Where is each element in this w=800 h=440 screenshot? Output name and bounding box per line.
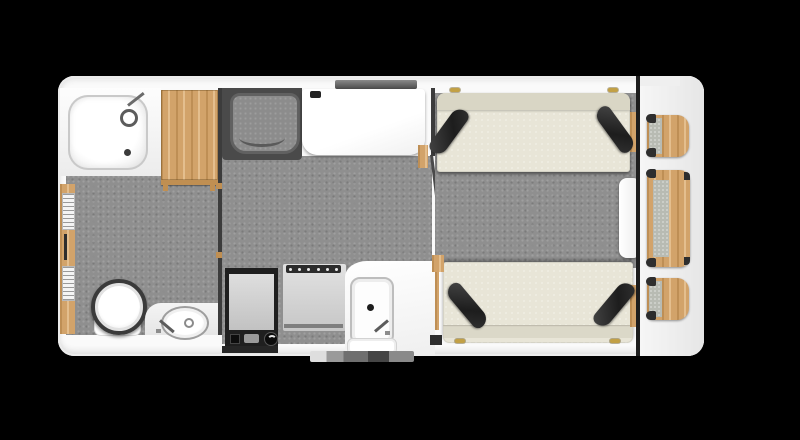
floorplan-canvas: { "scene": { "kind": "caravan-floorplan"… — [0, 0, 800, 440]
shelf-corner-trim — [646, 148, 656, 157]
shelf-corner-trim — [646, 114, 656, 123]
fridge-door — [229, 274, 274, 330]
sink-tap-base — [385, 331, 390, 335]
basin-tap-base — [156, 329, 161, 333]
chest-corner-trim — [684, 172, 690, 180]
wardrobe-foot — [163, 185, 168, 191]
fridge-handle — [244, 334, 259, 343]
cab-seat-curve — [239, 128, 285, 147]
vent-grille-icon — [62, 266, 75, 301]
wall-table — [302, 89, 425, 155]
bench-bottom-front — [443, 325, 633, 338]
wardrobe — [161, 90, 218, 180]
fridge-vent — [222, 346, 278, 353]
chest-panel — [653, 180, 669, 257]
fridge-knob-mark — [267, 335, 277, 345]
bench-hinge — [455, 339, 465, 343]
shelf-corner-trim — [646, 311, 656, 320]
chest-corner-trim — [646, 169, 656, 178]
shelf-corner-trim — [646, 277, 656, 286]
sink-drain — [367, 304, 374, 311]
vehicle-body-outline — [58, 76, 704, 356]
bench-hinge — [608, 88, 618, 92]
window — [335, 80, 417, 89]
bench-end-cap — [418, 145, 428, 168]
shower-drain — [124, 149, 131, 156]
vent-grille-icon — [62, 193, 75, 230]
chest-corner-trim — [646, 258, 656, 267]
bench-hinge — [450, 88, 460, 92]
toilet — [91, 279, 147, 335]
shower-head-icon — [120, 109, 138, 127]
shower-tray — [68, 95, 148, 170]
table-bracket — [310, 91, 321, 98]
fridge-switch — [230, 334, 240, 344]
rear-bay-lip — [640, 76, 680, 86]
cooker — [282, 263, 347, 332]
bench-hinge — [610, 339, 620, 343]
bench-end-cap — [432, 255, 444, 272]
entry-step — [310, 351, 414, 362]
cooker-front-rail — [284, 324, 343, 328]
cooker-knob-row — [286, 265, 341, 273]
wardrobe-foot — [210, 185, 215, 191]
door-stop — [430, 335, 442, 345]
door-latch — [64, 234, 67, 260]
basin-drain — [184, 318, 194, 328]
